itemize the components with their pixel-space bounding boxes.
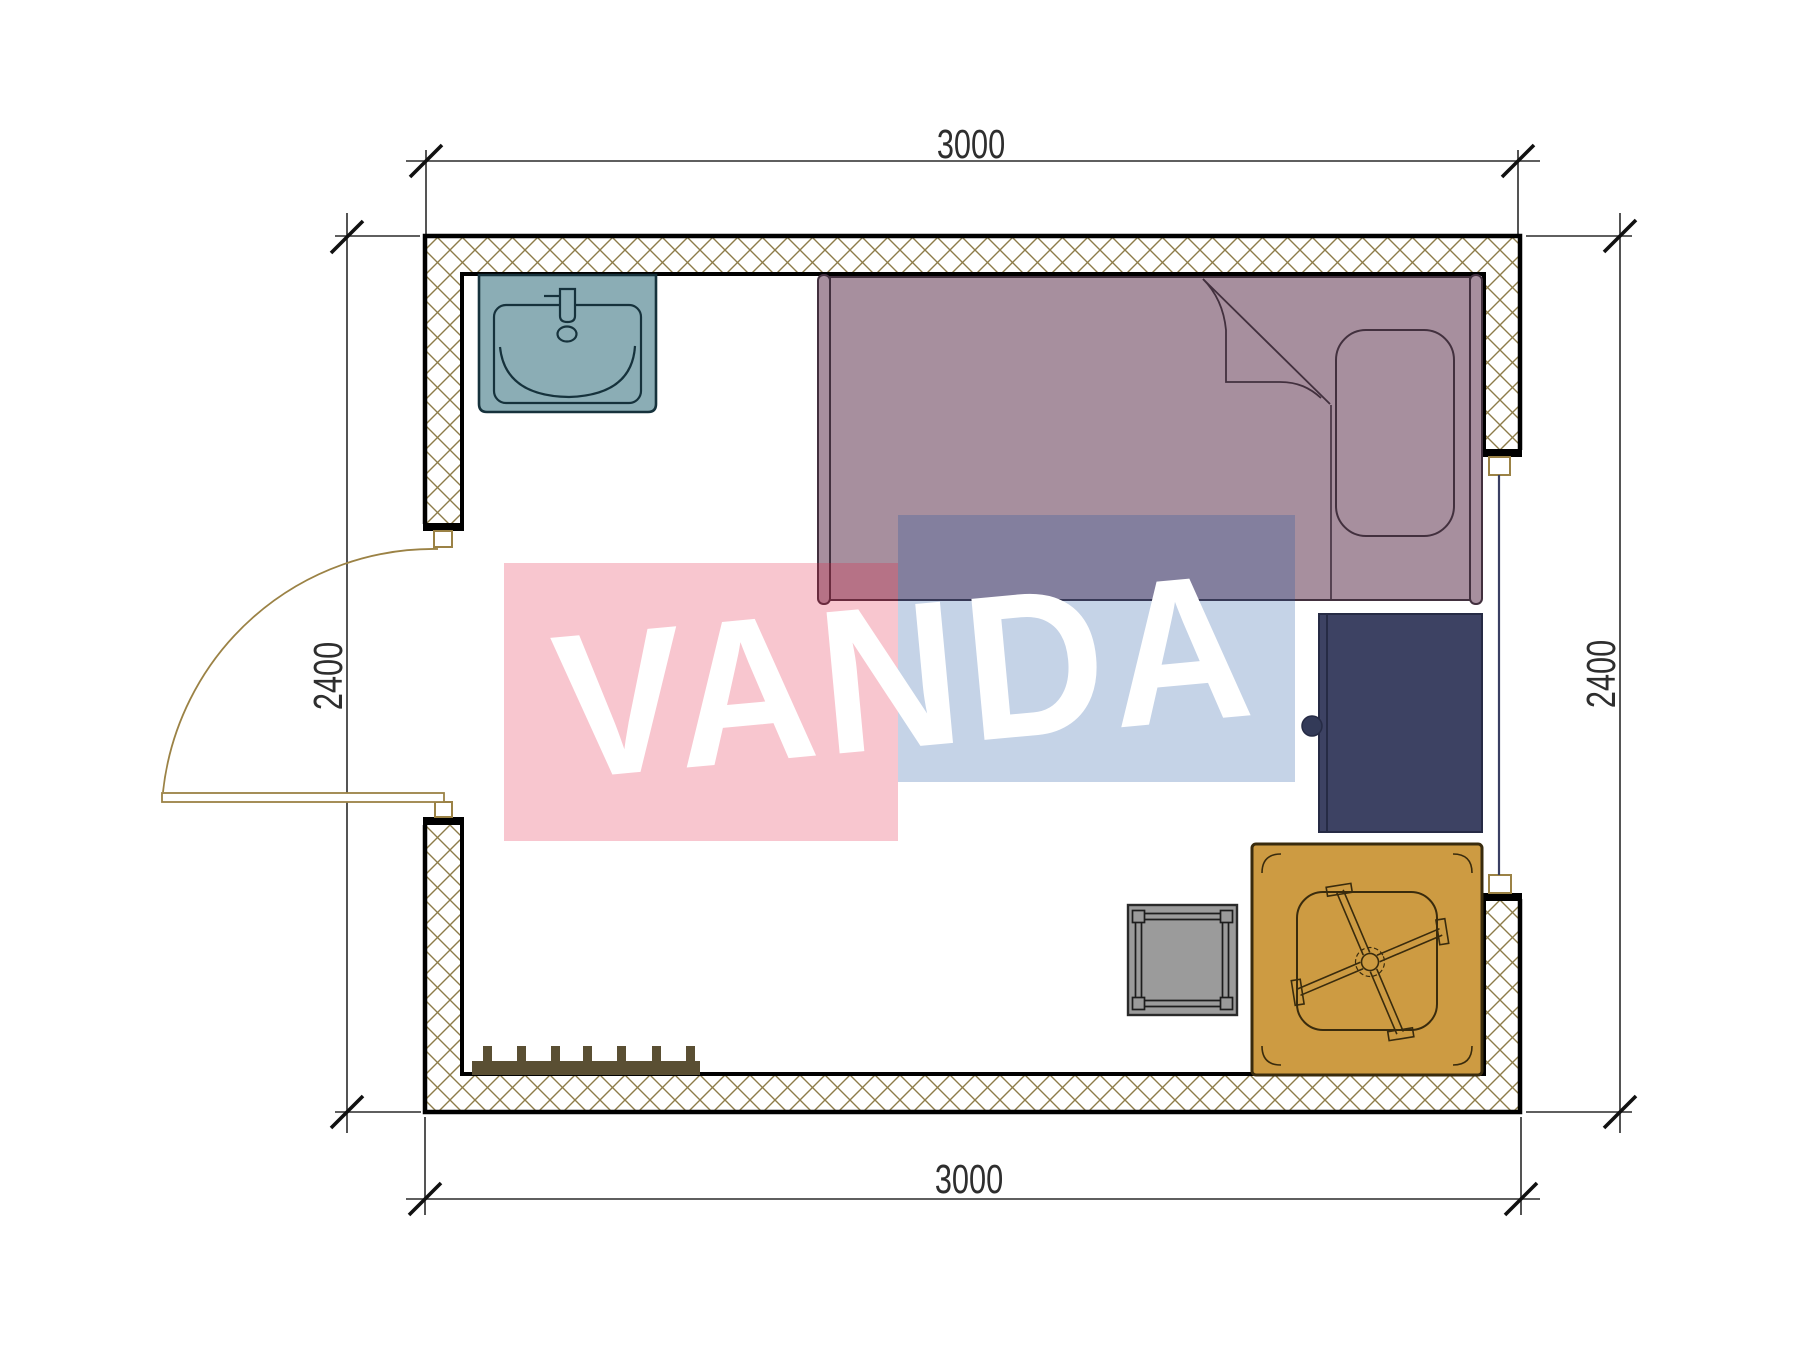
svg-text:3000: 3000 [937,121,1005,167]
svg-text:2400: 2400 [305,642,351,710]
svg-text:2400: 2400 [1578,640,1624,708]
svg-text:3000: 3000 [935,1156,1003,1202]
